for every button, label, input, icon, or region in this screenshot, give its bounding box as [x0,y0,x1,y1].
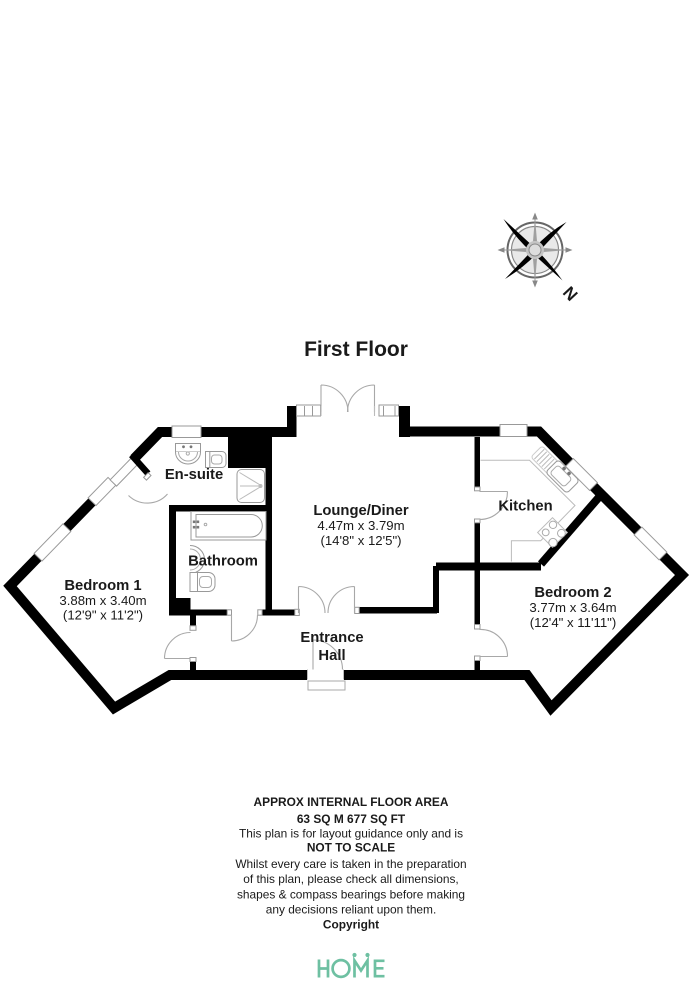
svg-text:Whilst every care is taken in: Whilst every care is taken in the prepar… [235,857,466,871]
svg-text:Copyright: Copyright [323,917,379,931]
svg-text:(12'9" x 11'2"): (12'9" x 11'2") [63,608,143,623]
svg-text:any decisions reliant upon the: any decisions reliant upon them. [266,902,437,916]
svg-text:APPROX INTERNAL FLOOR AREA: APPROX INTERNAL FLOOR AREA [254,795,449,809]
svg-text:3.88m x 3.40m: 3.88m x 3.40m [59,593,146,608]
svg-text:(12'4" x 11'11"): (12'4" x 11'11") [530,615,616,630]
svg-text:Lounge/Diner: Lounge/Diner [313,503,409,519]
svg-text:63 SQ M 677 SQ FT: 63 SQ M 677 SQ FT [297,812,406,826]
svg-text:Bedroom 2: Bedroom 2 [534,585,611,601]
svg-text:of this plan, please check all: of this plan, please check all dimension… [243,872,458,886]
svg-text:3.77m x 3.64m: 3.77m x 3.64m [529,600,616,615]
svg-text:NOT TO SCALE: NOT TO SCALE [307,840,395,854]
svg-text:Hall: Hall [318,648,345,664]
svg-text:shapes & compass bearings befo: shapes & compass bearings before making [237,887,465,901]
svg-text:En-suite: En-suite [165,467,223,483]
svg-text:Entrance: Entrance [300,630,363,646]
svg-text:Bedroom 1: Bedroom 1 [64,578,141,594]
svg-text:Bathroom: Bathroom [188,554,258,570]
svg-text:First Floor: First Floor [304,338,408,361]
svg-text:This plan is for layout guidan: This plan is for layout guidance only an… [239,826,463,840]
svg-text:4.47m x 3.79m: 4.47m x 3.79m [317,518,404,533]
svg-text:(14'8" x 12'5"): (14'8" x 12'5") [320,533,401,548]
svg-text:Kitchen: Kitchen [498,499,552,515]
